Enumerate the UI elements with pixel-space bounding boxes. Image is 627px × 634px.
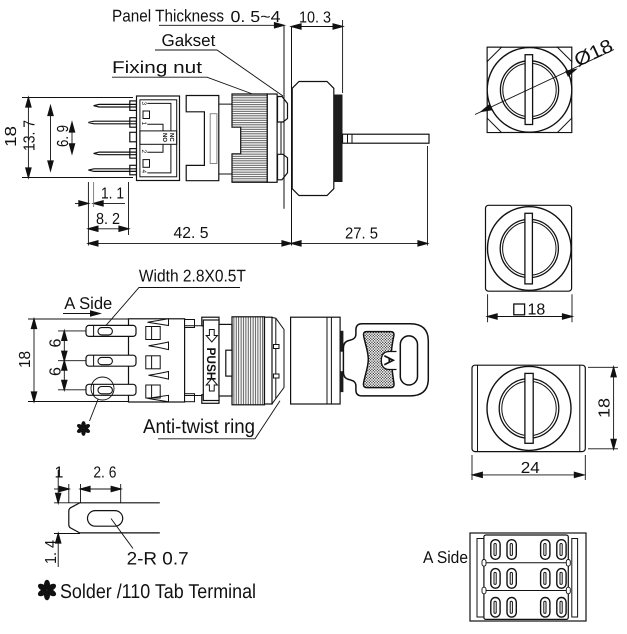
svg-text:6: 6 <box>48 339 65 348</box>
svg-text:A Side: A Side <box>64 294 112 313</box>
svg-text:0. 5~4: 0. 5~4 <box>231 9 281 26</box>
svg-text:Fixing nut: Fixing nut <box>112 58 202 77</box>
svg-text:A Side: A Side <box>423 548 468 567</box>
svg-text:8. 2: 8. 2 <box>96 211 120 228</box>
svg-text:2. 6: 2. 6 <box>93 465 116 482</box>
svg-text:1: 1 <box>55 465 64 482</box>
svg-text:Solder /110 Tab Terminal: Solder /110 Tab Terminal <box>60 581 256 603</box>
svg-text:42. 5: 42. 5 <box>174 225 209 242</box>
svg-text:Panel Thickness: Panel Thickness <box>112 7 224 26</box>
svg-text:6. 9: 6. 9 <box>55 125 72 147</box>
svg-text:Width 2.8X0.5T: Width 2.8X0.5T <box>139 267 246 286</box>
svg-text:3: 3 <box>140 102 147 106</box>
svg-text:6: 6 <box>48 367 65 376</box>
svg-text:1. 4: 1. 4 <box>43 540 60 564</box>
svg-text:1: 1 <box>140 122 147 126</box>
svg-text:13. 7: 13. 7 <box>22 120 39 151</box>
svg-text:Anti-twist ring: Anti-twist ring <box>143 416 255 438</box>
svg-text:27. 5: 27. 5 <box>345 226 378 243</box>
svg-text:NO: NO <box>161 133 168 142</box>
svg-text:1. 1: 1. 1 <box>101 186 124 203</box>
svg-text:2-R 0.7: 2-R 0.7 <box>127 549 189 569</box>
svg-text:PUSH: PUSH <box>204 348 218 381</box>
svg-text:10. 3: 10. 3 <box>299 10 331 27</box>
svg-text:Ø18: Ø18 <box>571 36 616 72</box>
svg-text:Gakset: Gakset <box>162 31 216 50</box>
svg-text:18: 18 <box>17 351 34 368</box>
svg-text:18: 18 <box>528 302 546 319</box>
svg-text:2: 2 <box>140 150 147 154</box>
svg-text:18: 18 <box>3 126 20 147</box>
svg-text:4: 4 <box>140 170 147 174</box>
svg-text:18: 18 <box>597 398 614 418</box>
svg-text:24: 24 <box>521 460 540 477</box>
svg-text:NC: NC <box>168 133 175 142</box>
